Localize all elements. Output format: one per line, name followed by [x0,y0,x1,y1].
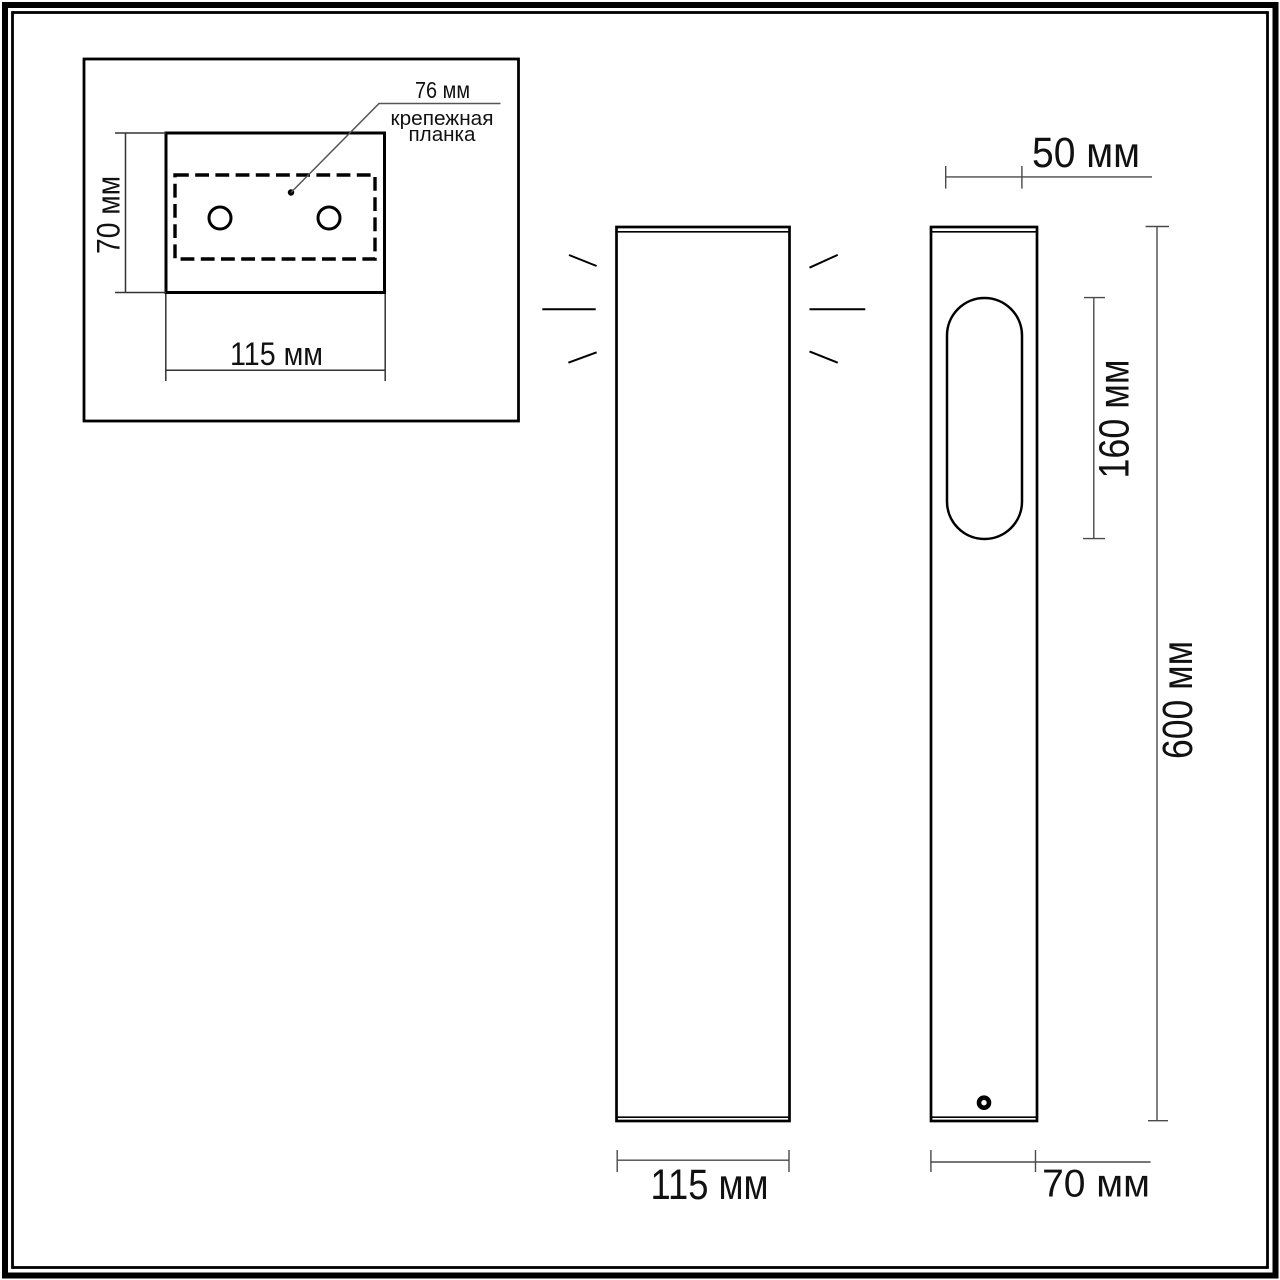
svg-text:50 мм: 50 мм [1032,129,1140,177]
svg-text:76 мм: 76 мм [415,77,470,103]
svg-text:70 мм: 70 мм [1042,1162,1150,1205]
svg-text:70 мм: 70 мм [90,176,126,254]
svg-text:600 мм: 600 мм [1154,641,1202,759]
svg-text:160 мм: 160 мм [1091,360,1139,479]
svg-text:планка: планка [409,123,477,146]
svg-text:115 мм: 115 мм [230,336,323,372]
svg-text:115 мм: 115 мм [651,1161,769,1209]
